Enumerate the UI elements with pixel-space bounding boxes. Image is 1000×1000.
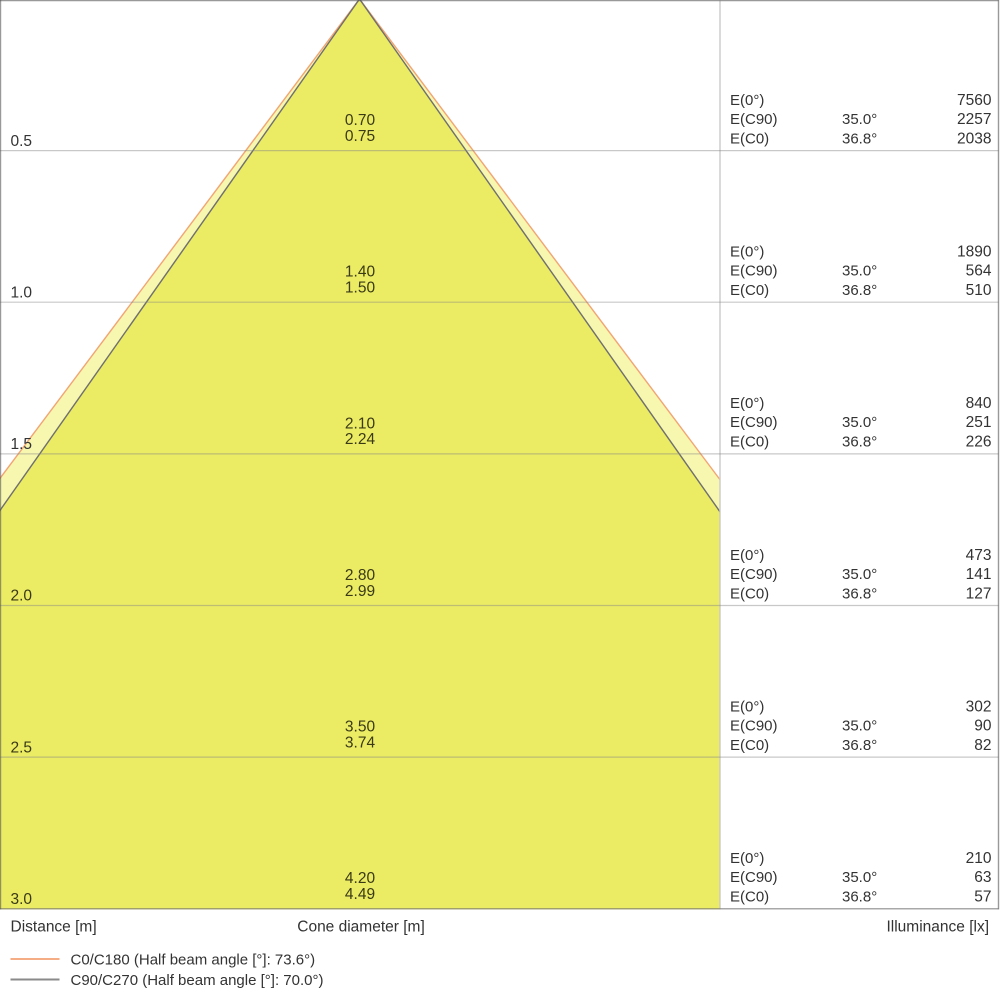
svg-text:E(0°): E(0°) <box>730 395 764 412</box>
svg-text:35.0°: 35.0° <box>842 111 877 128</box>
svg-text:473: 473 <box>966 547 992 564</box>
svg-text:0.70: 0.70 <box>345 112 376 129</box>
svg-text:E(0°): E(0°) <box>730 698 764 715</box>
svg-text:2.24: 2.24 <box>345 431 376 448</box>
svg-text:4.49: 4.49 <box>345 886 375 903</box>
svg-text:90: 90 <box>974 717 992 734</box>
svg-text:3.0: 3.0 <box>11 891 33 908</box>
svg-text:2.0: 2.0 <box>11 588 33 605</box>
svg-text:7560: 7560 <box>957 92 992 109</box>
svg-text:510: 510 <box>966 282 992 299</box>
svg-text:82: 82 <box>974 737 991 754</box>
svg-text:2.10: 2.10 <box>345 415 376 432</box>
svg-text:E(0°): E(0°) <box>730 547 764 564</box>
svg-text:E(C0): E(C0) <box>730 737 769 754</box>
svg-text:1.0: 1.0 <box>11 284 33 301</box>
svg-text:1.40: 1.40 <box>345 264 376 281</box>
svg-text:E(C0): E(C0) <box>730 889 769 906</box>
svg-text:302: 302 <box>966 698 992 715</box>
svg-text:2.5: 2.5 <box>11 739 33 756</box>
svg-text:840: 840 <box>966 395 992 412</box>
svg-text:36.8°: 36.8° <box>842 889 877 906</box>
svg-text:63: 63 <box>974 869 991 886</box>
svg-text:0.5: 0.5 <box>11 133 33 150</box>
svg-text:E(C0): E(C0) <box>730 585 769 602</box>
svg-text:E(C0): E(C0) <box>730 130 769 147</box>
svg-text:E(0°): E(0°) <box>730 92 764 109</box>
svg-text:57: 57 <box>974 889 991 906</box>
svg-text:1.5: 1.5 <box>11 436 33 453</box>
svg-text:E(C90): E(C90) <box>730 566 778 583</box>
svg-text:2.99: 2.99 <box>345 583 375 600</box>
svg-text:35.0°: 35.0° <box>842 263 877 280</box>
svg-text:1.50: 1.50 <box>345 280 376 297</box>
svg-text:226: 226 <box>966 434 992 451</box>
svg-text:35.0°: 35.0° <box>842 566 877 583</box>
svg-text:36.8°: 36.8° <box>842 737 877 754</box>
svg-text:141: 141 <box>966 566 992 583</box>
svg-text:36.8°: 36.8° <box>842 282 877 299</box>
svg-text:127: 127 <box>966 585 992 602</box>
svg-text:35.0°: 35.0° <box>842 869 877 886</box>
svg-text:Illuminance [lx]: Illuminance [lx] <box>886 919 989 936</box>
svg-text:E(C0): E(C0) <box>730 434 769 451</box>
svg-text:36.8°: 36.8° <box>842 585 877 602</box>
svg-text:2.80: 2.80 <box>345 567 376 584</box>
svg-text:Cone diameter [m]: Cone diameter [m] <box>297 919 425 936</box>
svg-text:0.75: 0.75 <box>345 128 375 145</box>
svg-text:E(0°): E(0°) <box>730 850 764 867</box>
svg-text:Distance [m]: Distance [m] <box>11 919 97 936</box>
svg-text:3.50: 3.50 <box>345 719 376 736</box>
svg-text:210: 210 <box>966 850 992 867</box>
svg-text:E(0°): E(0°) <box>730 244 764 261</box>
svg-text:4.20: 4.20 <box>345 870 376 887</box>
svg-text:251: 251 <box>966 414 992 431</box>
svg-text:36.8°: 36.8° <box>842 434 877 451</box>
svg-text:36.8°: 36.8° <box>842 130 877 147</box>
svg-text:C90/C270 (Half beam angle [°]:: C90/C270 (Half beam angle [°]: 70.0°) <box>71 972 324 989</box>
svg-text:35.0°: 35.0° <box>842 717 877 734</box>
svg-text:564: 564 <box>966 263 992 280</box>
svg-text:2257: 2257 <box>957 111 991 128</box>
svg-text:C0/C180 (Half beam angle [°]:: C0/C180 (Half beam angle [°]: 73.6°) <box>71 951 316 968</box>
svg-text:E(C90): E(C90) <box>730 869 778 886</box>
svg-text:E(C90): E(C90) <box>730 414 778 431</box>
svg-text:2038: 2038 <box>957 130 991 147</box>
svg-text:35.0°: 35.0° <box>842 414 877 431</box>
svg-text:3.74: 3.74 <box>345 734 376 751</box>
svg-text:E(C90): E(C90) <box>730 717 778 734</box>
svg-text:1890: 1890 <box>957 244 992 261</box>
svg-text:E(C90): E(C90) <box>730 111 778 128</box>
svg-text:E(C90): E(C90) <box>730 263 778 280</box>
svg-text:E(C0): E(C0) <box>730 282 769 299</box>
